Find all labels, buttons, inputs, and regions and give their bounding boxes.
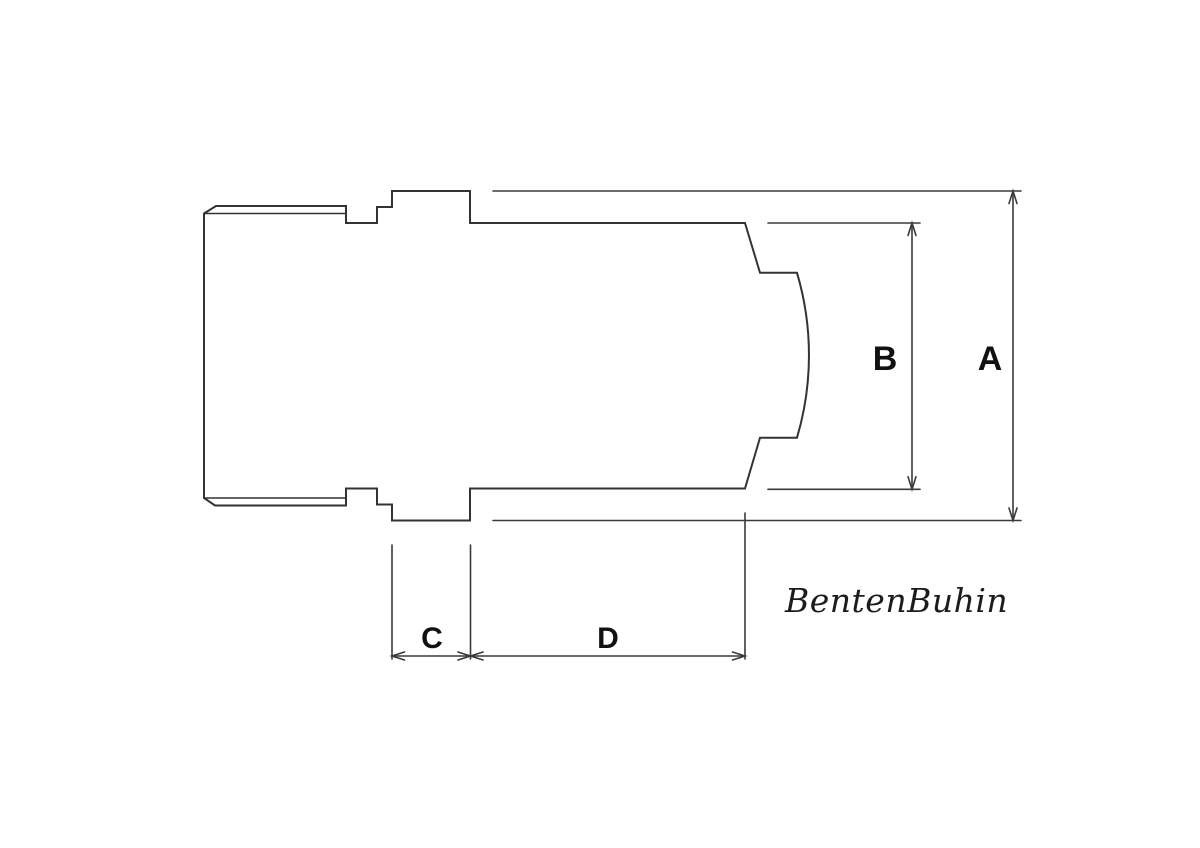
technical-drawing: A B C D BentenBuhin (0, 0, 1200, 848)
dimension-c-d (392, 513, 745, 660)
drawing-canvas: A B C D BentenBuhin (0, 0, 1200, 848)
dim-a-label: A (978, 340, 1003, 378)
dim-d-label: D (597, 622, 619, 655)
dimension-a (493, 191, 1021, 521)
dim-c-label: C (421, 622, 443, 655)
part-view (204, 191, 809, 521)
part-outline (204, 191, 809, 521)
dim-b-label: B (873, 340, 898, 378)
brand-signature: BentenBuhin (784, 581, 1008, 620)
